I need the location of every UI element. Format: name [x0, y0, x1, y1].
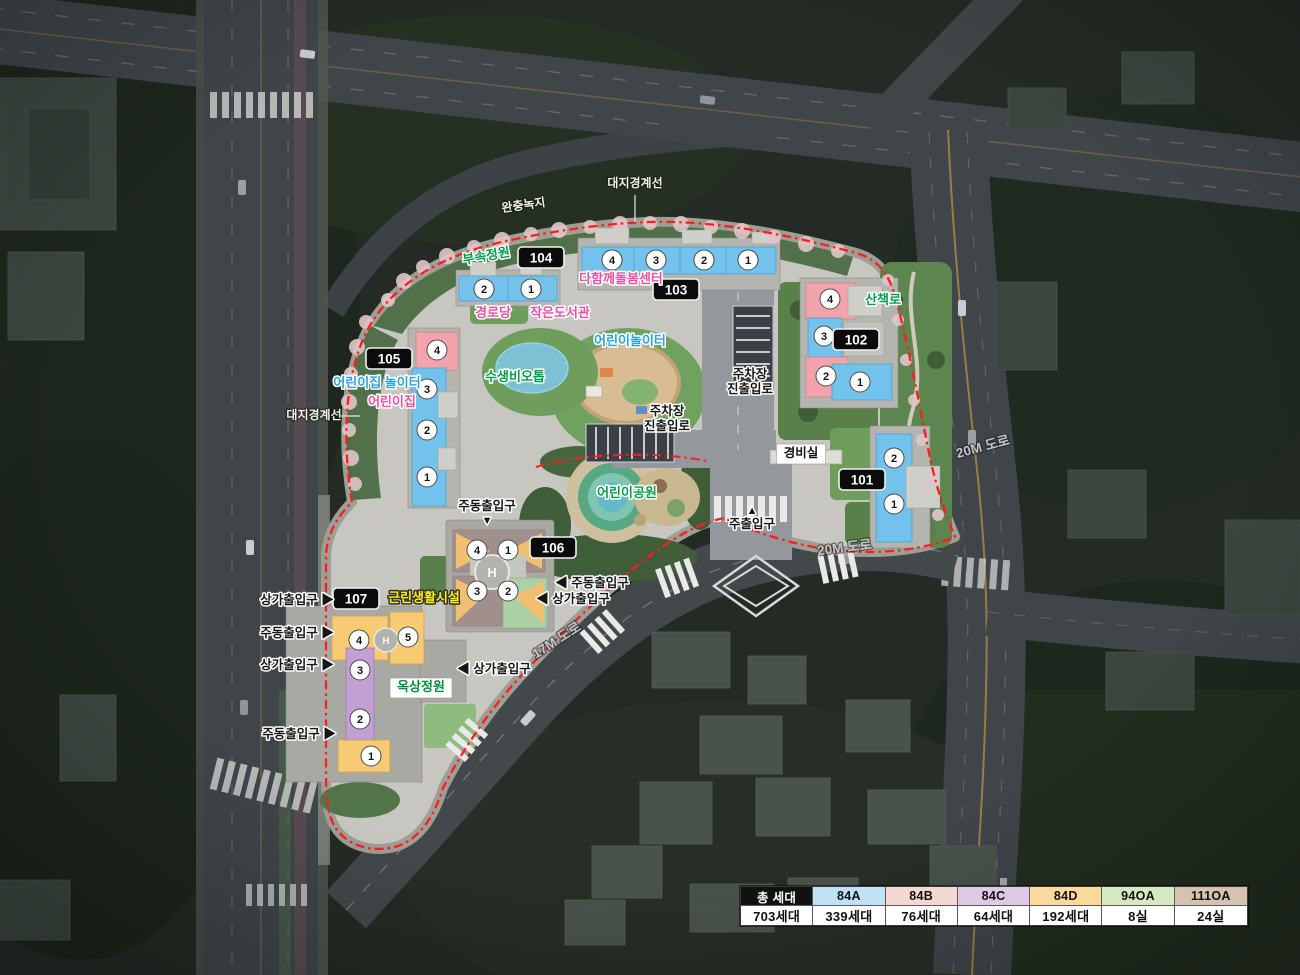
map-label-26: 옥상정원: [390, 678, 452, 698]
building-103-unit-3: 3: [646, 250, 666, 270]
svg-text:3: 3: [357, 665, 363, 677]
map-label-14: 어린이공원: [597, 485, 657, 500]
site-plan-map: 2110143211024321103211044321105413210645…: [0, 0, 1300, 975]
svg-text:2: 2: [481, 284, 487, 296]
svg-text:주차장: 주차장: [650, 403, 685, 418]
map-label-0: 대지경계선: [607, 175, 662, 190]
svg-text:1: 1: [857, 377, 863, 389]
svg-text:2: 2: [701, 255, 707, 267]
building-105-unit-1: 1: [417, 467, 437, 487]
svg-text:H: H: [382, 636, 389, 647]
svg-text:상가출입구 ▶: 상가출입구 ▶: [260, 592, 334, 607]
svg-text:근린생활시설: 근린생활시설: [388, 590, 460, 605]
building-107-badge: 107: [333, 588, 379, 609]
legend-value-0: 703세대: [741, 906, 813, 925]
building-102-badge: 102: [833, 329, 879, 350]
map-label-9: 수생비오톱: [485, 369, 545, 384]
legend-value-1: 339세대: [813, 906, 885, 925]
map-label-20: 주동출입구: [458, 498, 516, 513]
building-103-unit-1: 1: [738, 250, 758, 270]
legend-value-2: 76세대: [886, 906, 958, 925]
svg-text:어린이집: 어린이집: [368, 394, 416, 409]
svg-text:주출입구: 주출입구: [729, 516, 776, 531]
building-106-unit-4: 4: [467, 540, 487, 560]
svg-text:4: 4: [609, 255, 616, 267]
building-104-unit-1: 1: [521, 279, 541, 299]
svg-text:2: 2: [891, 453, 897, 465]
building-102-unit-4: 4: [820, 289, 840, 309]
svg-text:2: 2: [505, 586, 511, 598]
svg-text:4: 4: [474, 545, 481, 557]
building-105-unit-2: 2: [417, 420, 437, 440]
map-label-10: 어린이놀이터: [594, 333, 666, 348]
map-label-21: ▼: [482, 515, 493, 527]
svg-text:2: 2: [357, 714, 363, 726]
svg-text:3: 3: [821, 331, 827, 343]
svg-text:1: 1: [745, 255, 751, 267]
building-106-badge: 106: [530, 537, 576, 558]
building-105-badge: 105: [366, 348, 412, 369]
building-103-unit-2: 2: [694, 250, 714, 270]
svg-text:주동출입구 ▶: 주동출입구 ▶: [260, 625, 334, 640]
building-106-unit-1: 1: [498, 540, 518, 560]
svg-text:진출입로: 진출입로: [644, 418, 691, 433]
building-102-unit-3: 3: [814, 326, 834, 346]
map-label-7: 어린이집 놀이터: [333, 375, 420, 390]
svg-text:수생비오톱: 수생비오톱: [485, 369, 545, 384]
map-label-24: ◀ 상가출입구: [457, 661, 531, 676]
svg-text:3: 3: [474, 586, 480, 598]
legend-value-5: 8실: [1102, 906, 1174, 925]
svg-text:107: 107: [345, 592, 368, 607]
legend-header-84A: 84A: [813, 887, 885, 906]
legend-header-94OA: 94OA: [1102, 887, 1174, 906]
map-label-25: 근린생활시설: [388, 590, 460, 605]
svg-text:1: 1: [891, 499, 897, 511]
legend-header-84B: 84B: [886, 887, 958, 906]
svg-text:▲: ▲: [747, 505, 758, 517]
svg-text:104: 104: [530, 251, 553, 266]
svg-text:1: 1: [528, 284, 534, 296]
site-plan-canvas: 2110143211024321103211044321105413210645…: [0, 0, 1300, 975]
svg-text:4: 4: [356, 635, 363, 647]
svg-text:◀ 상가출입구: ◀ 상가출입구: [536, 591, 610, 606]
svg-text:4: 4: [434, 345, 441, 357]
building-107-unit-1: 1: [361, 746, 381, 766]
map-label-32: H: [487, 565, 496, 580]
legend-header-84C: 84C: [958, 887, 1030, 906]
svg-text:진출입로: 진출입로: [727, 381, 774, 396]
map-label-33: H: [382, 636, 389, 647]
svg-text:산책로: 산책로: [865, 292, 901, 307]
svg-text:103: 103: [665, 283, 688, 298]
svg-text:4: 4: [827, 294, 834, 306]
map-label-29: 상가출입구 ▶: [260, 657, 334, 672]
svg-text:2: 2: [424, 425, 430, 437]
svg-text:상가출입구 ▶: 상가출입구 ▶: [260, 657, 334, 672]
svg-text:◀ 주동출입구: ◀ 주동출입구: [555, 575, 629, 590]
legend-value-6: 24실: [1175, 906, 1247, 925]
svg-text:3: 3: [653, 255, 659, 267]
map-label-13: 경비실: [777, 444, 826, 464]
svg-text:경로당: 경로당: [475, 305, 511, 320]
svg-text:105: 105: [378, 352, 401, 367]
building-102-unit-1: 1: [850, 372, 870, 392]
map-label-8: 어린이집: [368, 394, 416, 409]
map-label-16: 주출입구: [729, 516, 776, 531]
building-103-unit-4: 4: [602, 250, 622, 270]
map-label-23: ◀ 상가출입구: [536, 591, 610, 606]
map-label-30: 주동출입구 ▶: [262, 726, 336, 741]
building-101-unit-1: 1: [884, 494, 904, 514]
svg-text:1: 1: [424, 472, 430, 484]
map-label-15: ▲: [747, 505, 758, 517]
svg-text:작은도서관: 작은도서관: [530, 305, 590, 320]
svg-text:어린이놀이터: 어린이놀이터: [594, 333, 666, 348]
building-102-unit-2: 2: [816, 366, 836, 386]
building-107-unit-2: 2: [350, 709, 370, 729]
legend-header-111OA: 111OA: [1175, 887, 1247, 906]
svg-text:H: H: [487, 565, 496, 580]
building-104-badge: 104: [518, 247, 564, 268]
svg-text:▼: ▼: [482, 515, 493, 527]
svg-text:어린이공원: 어린이공원: [597, 485, 657, 500]
legend-value-3: 64세대: [958, 906, 1030, 925]
map-label-4: 경로당: [475, 305, 511, 320]
building-105-unit-4: 4: [427, 340, 447, 360]
svg-text:106: 106: [542, 541, 565, 556]
map-label-28: 주동출입구 ▶: [260, 625, 334, 640]
building-107-unit-5: 5: [398, 627, 418, 647]
legend-value-4: 192세대: [1030, 906, 1102, 925]
building-101-badge: 101: [839, 469, 885, 490]
svg-text:5: 5: [405, 632, 411, 644]
building-106-unit-2: 2: [498, 581, 518, 601]
building-107-unit-4: 4: [349, 630, 369, 650]
svg-text:1: 1: [368, 751, 374, 763]
svg-text:주차장: 주차장: [733, 366, 768, 381]
svg-text:102: 102: [845, 333, 868, 348]
legend-header-총-세대: 총 세대: [741, 887, 813, 906]
map-label-6: 산책로: [865, 292, 901, 307]
building-101-unit-2: 2: [884, 448, 904, 468]
building-107-unit-3: 3: [350, 660, 370, 680]
svg-text:◀ 상가출입구: ◀ 상가출입구: [457, 661, 531, 676]
map-label-27: 상가출입구 ▶: [260, 592, 334, 607]
svg-text:2: 2: [823, 371, 829, 383]
svg-text:대지경계선: 대지경계선: [286, 407, 341, 422]
svg-text:다함께돌봄센터: 다함께돌봄센터: [579, 271, 663, 286]
svg-text:주동출입구 ▶: 주동출입구 ▶: [262, 726, 336, 741]
map-label-3: 다함께돌봄센터: [579, 271, 663, 286]
legend-header-84D: 84D: [1030, 887, 1102, 906]
map-label-31: 대지경계선: [286, 407, 341, 422]
unit-type-legend: 총 세대84A84B84C84D94OA111OA703세대339세대76세대6…: [740, 886, 1248, 926]
svg-text:어린이집 놀이터: 어린이집 놀이터: [333, 375, 420, 390]
svg-text:옥상정원: 옥상정원: [397, 679, 445, 694]
building-104-unit-2: 2: [474, 279, 494, 299]
svg-text:101: 101: [851, 473, 874, 488]
building-106-unit-3: 3: [467, 581, 487, 601]
svg-text:경비실: 경비실: [784, 445, 819, 460]
map-label-22: ◀ 주동출입구: [555, 575, 629, 590]
map-label-5: 작은도서관: [530, 305, 590, 320]
svg-text:1: 1: [505, 545, 511, 557]
svg-text:3: 3: [424, 384, 430, 396]
svg-text:대지경계선: 대지경계선: [607, 175, 662, 190]
svg-text:주동출입구: 주동출입구: [458, 498, 516, 513]
